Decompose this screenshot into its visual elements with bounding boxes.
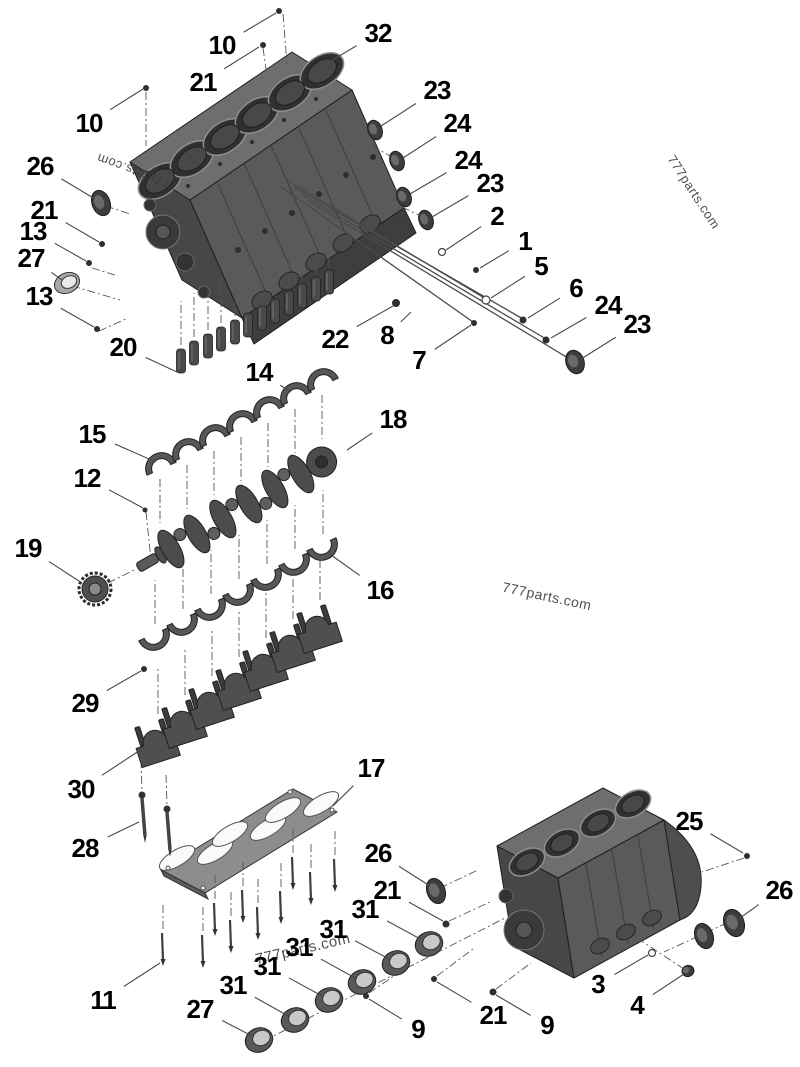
leader-line-4-46 (653, 974, 684, 995)
leader-line-21-15 (66, 223, 99, 242)
stud-tip (256, 933, 261, 940)
callout-32-2: 32 (365, 20, 392, 46)
leader-line-29-29 (107, 671, 141, 691)
stud-tip (241, 916, 246, 923)
callout-20-19: 20 (110, 334, 137, 360)
washer-ring (439, 249, 446, 256)
leader-line-8-21 (401, 312, 411, 322)
leader-line-1-9 (480, 251, 509, 268)
stud-shaft (230, 920, 231, 948)
tappet (204, 334, 213, 358)
tappet (190, 341, 199, 365)
centerline (99, 318, 128, 331)
stud-tip (229, 946, 234, 953)
lower-bearing-shell (223, 583, 259, 611)
callout-9-44: 9 (540, 1012, 553, 1038)
tappet (231, 320, 240, 344)
leader-line-6-11 (528, 298, 560, 318)
leader-line-31-35 (255, 997, 290, 1017)
callout-3-45: 3 (591, 971, 604, 997)
fastener-dot (473, 267, 479, 273)
fastener-dot (94, 326, 100, 332)
upper-bearing-shell (168, 434, 204, 462)
callout-12-25: 12 (74, 465, 101, 491)
callout-26-14: 26 (27, 153, 54, 179)
centerline (449, 901, 492, 921)
callout-16-28: 16 (367, 577, 394, 603)
leader-line-27-34 (222, 1021, 254, 1037)
cap-bolts-illustration (139, 792, 172, 858)
centerline (92, 268, 118, 276)
leader-line-26-14 (61, 179, 95, 199)
stud-tip (309, 898, 314, 905)
tappet (312, 277, 321, 301)
leader-line-13-18 (61, 308, 94, 327)
stud-shaft (242, 890, 243, 918)
centerline (72, 286, 120, 300)
callout-13-16: 13 (20, 218, 47, 244)
callout-24-5: 24 (444, 110, 471, 136)
tappet (325, 270, 334, 294)
callout-4-46: 4 (630, 992, 643, 1018)
callout-23-7: 23 (477, 170, 504, 196)
callout-10-3: 10 (76, 110, 103, 136)
callout-5-10: 5 (534, 253, 547, 279)
fastener-dot (141, 666, 147, 672)
leader-line-26-40 (399, 866, 430, 886)
callout-15-24: 15 (79, 421, 106, 447)
callout-7-22: 7 (412, 347, 425, 373)
fastener-dot (744, 853, 750, 859)
lower-bearing-shell (251, 568, 287, 596)
leader-line-25-47 (711, 834, 743, 853)
leader-line-24-12 (551, 318, 586, 338)
lower-bearing-shell (307, 538, 343, 566)
leader-line-19-26 (49, 562, 82, 583)
tappet (298, 284, 307, 308)
washer-ring (649, 950, 656, 957)
fastener-dot (276, 8, 282, 14)
fastener-dot (392, 299, 400, 307)
lower-bearing-shell (139, 628, 175, 656)
stud-shaft (162, 933, 163, 961)
tappet (217, 327, 226, 351)
callout-8-21: 8 (380, 322, 393, 348)
stud-shaft (202, 935, 203, 963)
leader-line-10-0 (244, 13, 276, 32)
callout-9-42: 9 (411, 1016, 424, 1042)
leader-line-16-28 (327, 552, 360, 575)
callout-26-48: 26 (766, 877, 793, 903)
stud-shaft (280, 891, 281, 919)
centerline (166, 775, 167, 806)
callout-11-33: 11 (90, 987, 116, 1013)
upper-bearing-shell (141, 448, 177, 476)
leader-line-21-43 (437, 982, 471, 1002)
leader-line-23-4 (381, 104, 416, 126)
centerline (640, 940, 684, 969)
callout-31-35: 31 (220, 972, 247, 998)
leader-line-20-19 (146, 358, 177, 372)
stud-shaft (214, 903, 215, 931)
callout-23-13: 23 (624, 311, 651, 337)
stud-tip (201, 961, 206, 968)
callout-1-9: 1 (518, 228, 531, 254)
tappet (258, 306, 267, 330)
fastener-dot (363, 993, 369, 999)
stud-shaft (257, 907, 258, 935)
stud-tip (213, 929, 218, 936)
upper-bearing-shell (303, 364, 339, 392)
leader-line-18-27 (347, 433, 372, 450)
stiffener-plate-illustration (156, 787, 343, 899)
callout-23-4: 23 (424, 77, 451, 103)
callout-27-17: 27 (18, 245, 45, 271)
fastener-dot (443, 921, 450, 928)
leader-line-31-37 (321, 959, 357, 979)
fastener-dot (520, 317, 527, 324)
centerline (437, 949, 473, 976)
leader-line-12-25 (109, 490, 143, 508)
leader-line-24-6 (410, 173, 446, 194)
stud-tip (279, 917, 284, 924)
callout-13-18: 13 (26, 283, 53, 309)
leader-line-7-22 (435, 325, 471, 349)
stud-tip (333, 885, 338, 892)
leader-line-26-48 (740, 905, 759, 918)
leader-line-21-41 (409, 902, 443, 921)
callout-31-38: 31 (320, 916, 347, 942)
callout-24-12: 24 (595, 292, 622, 318)
fastener-dot (86, 260, 92, 266)
callout-17-32: 17 (358, 755, 385, 781)
upper-bearing-shell (222, 406, 258, 434)
leader-line-5-10 (491, 276, 525, 298)
callout-26-40: 26 (365, 840, 392, 866)
leader-line-31-39 (387, 921, 424, 941)
fastener-dot (143, 508, 148, 513)
callout-21-41: 21 (374, 877, 401, 903)
leader-line-23-7 (432, 196, 468, 217)
centerline (108, 569, 136, 583)
fastener-dot (99, 241, 105, 247)
leader-line-28-31 (108, 822, 139, 837)
fastener-dot (260, 42, 266, 48)
centerline (146, 512, 151, 560)
tappet (244, 313, 253, 337)
tappet (177, 349, 186, 373)
fastener-dot (143, 85, 149, 91)
callout-19-26: 19 (15, 535, 42, 561)
callout-30-30: 30 (68, 776, 95, 802)
fastener-dot (431, 976, 437, 982)
fastener-dot (490, 989, 497, 996)
upper-bearing-shell (249, 392, 285, 420)
stud-shaft (292, 857, 293, 885)
leader-line-31-38 (355, 941, 391, 960)
stud-tip (291, 883, 296, 890)
callout-21-1: 21 (190, 69, 217, 95)
upper-bearing-shell (276, 378, 312, 406)
leader-line-2-8 (446, 227, 481, 250)
callout-10-0: 10 (209, 32, 236, 58)
lower-bearing-shell (195, 598, 231, 626)
leader-line-23-13 (581, 337, 616, 359)
fastener-dot (471, 320, 477, 326)
leader-line-24-5 (403, 137, 436, 158)
tappet (271, 299, 280, 323)
callout-31-36: 31 (254, 953, 281, 979)
callout-6-11: 6 (569, 275, 582, 301)
leader-line-31-36 (289, 978, 324, 997)
leader-line-3-45 (614, 955, 648, 974)
callout-2-8: 2 (490, 203, 503, 229)
callout-14-23: 14 (246, 359, 273, 385)
leader-line-10-3 (110, 89, 143, 110)
callout-25-47: 25 (676, 808, 703, 834)
callout-27-34: 27 (187, 996, 214, 1022)
callout-29-29: 29 (72, 690, 99, 716)
centerline (496, 963, 531, 989)
callout-22-20: 22 (322, 326, 349, 352)
stud-tip (161, 959, 166, 966)
engine-block-bottom-illustration (497, 784, 701, 978)
leader-line-11-33 (124, 963, 160, 986)
centerline (440, 870, 478, 888)
lower-bearing-shell (167, 613, 203, 641)
leader-line-15-24 (115, 444, 156, 462)
centerline (702, 858, 744, 872)
stud-shaft (334, 859, 335, 887)
washer-ring (482, 296, 490, 304)
callout-31-37: 31 (286, 934, 313, 960)
callout-21-43: 21 (480, 1002, 507, 1028)
diagram-stage: 777parts.com777parts.com777parts.com777p… (0, 0, 800, 1067)
leader-line-13-16 (55, 243, 86, 261)
tappet (285, 291, 294, 315)
lower-bearing-shell (279, 553, 315, 581)
crank-gear-illustration (79, 573, 111, 605)
fastener-dot (543, 337, 550, 344)
upper-bearing-shell (195, 420, 231, 448)
callout-28-31: 28 (72, 835, 99, 861)
stud-shaft (310, 872, 311, 900)
callout-18-27: 18 (380, 406, 407, 432)
leader-line-9-42 (369, 999, 402, 1019)
